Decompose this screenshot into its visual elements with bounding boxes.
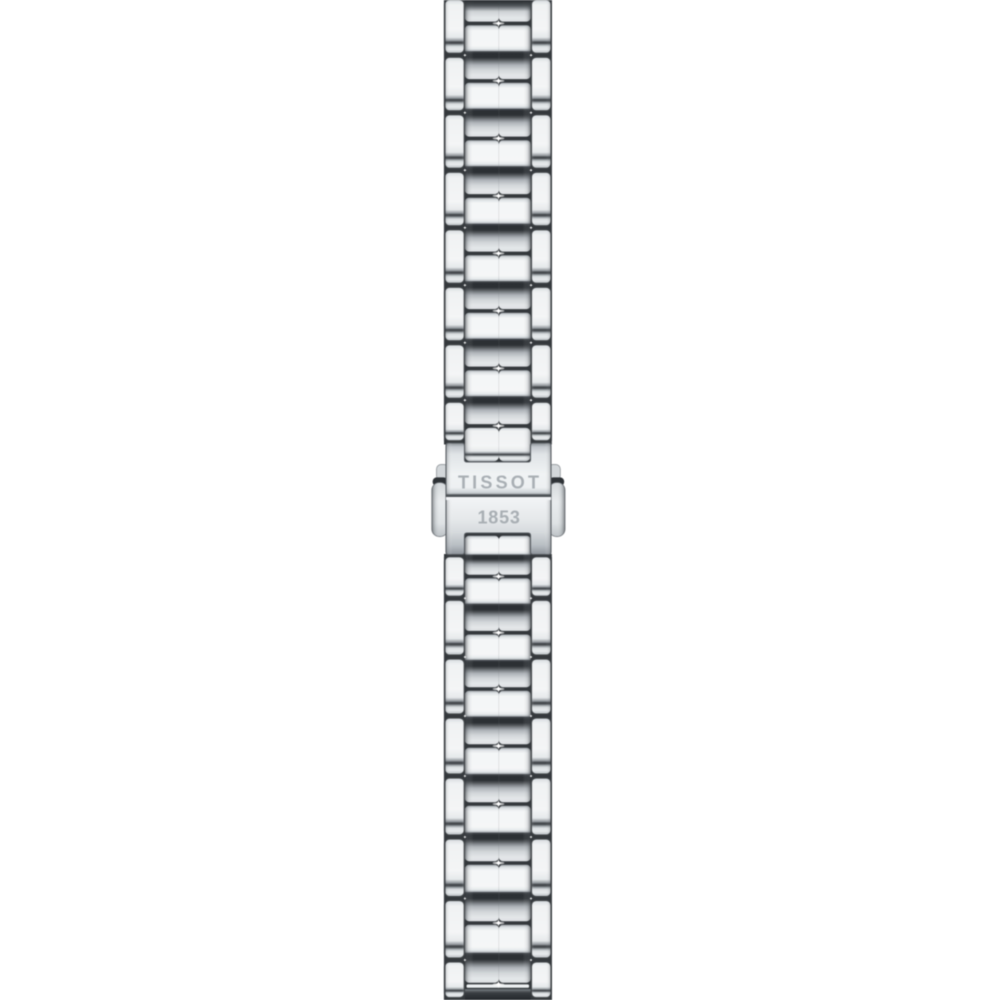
svg-text:1853: 1853 [477,508,520,528]
svg-text:TISSOT: TISSOT [458,473,542,493]
